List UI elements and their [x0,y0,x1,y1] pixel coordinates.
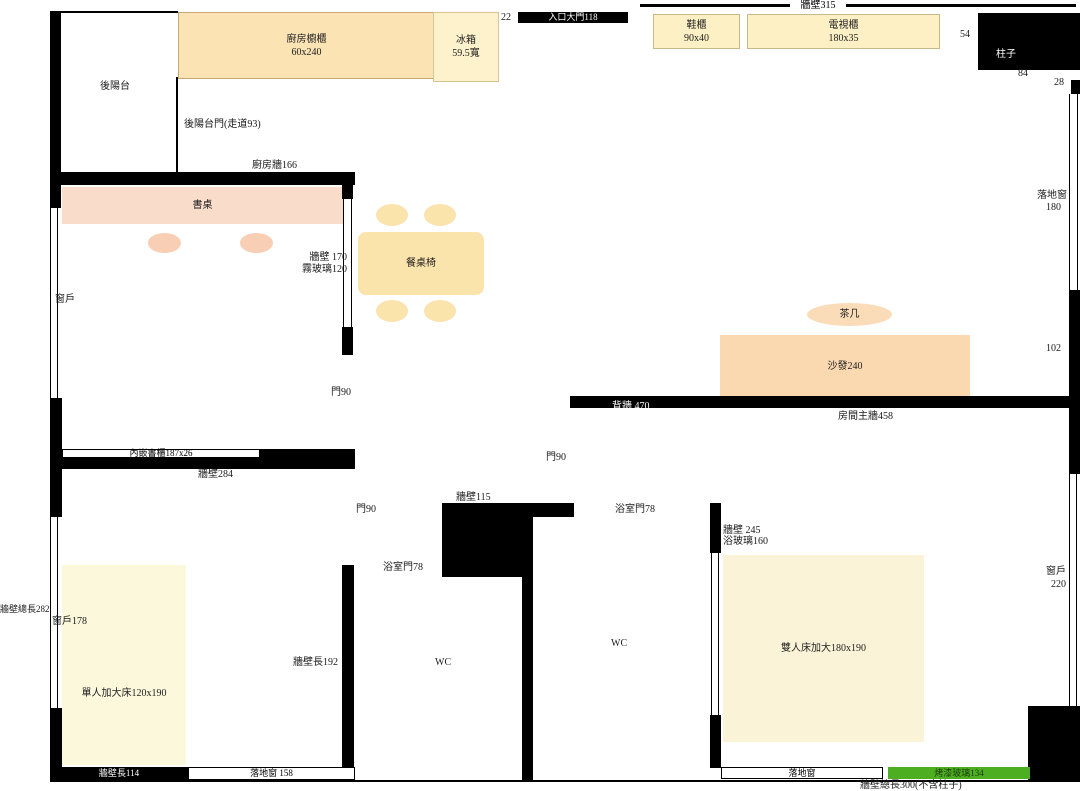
single-bed: 單人加大床120x190 [62,565,186,765]
study-door-label: 門90 [331,387,351,398]
wall-192-label: 牆壁長192 [290,657,338,668]
painted-glass-label: 烤漆玻璃134 [934,769,984,778]
window-178-label: 窗戶178 [52,616,87,627]
dining-table-label: 餐桌椅 [406,257,436,270]
pillar: 柱子 [978,13,1080,70]
dining-table: 餐桌椅 [358,232,484,295]
dining-chair-2 [424,204,456,226]
wall-right-below-back [1069,408,1080,474]
bookcase-label: 內嵌書櫃187x26 [129,449,192,458]
balcony-door-label: 後陽台門(走道93) [184,119,261,130]
hall-door-label: 門90 [546,452,566,463]
wall-wc2-right-top [710,503,721,553]
study-frosted-glass [343,199,352,327]
french-window-right [1069,94,1078,290]
floor-window-158: 落地窗 158 [188,767,355,780]
bath-glass-label: 浴玻璃160 [723,536,768,547]
tv-cabinet-size: 180x35 [829,32,859,45]
wall-top-balcony-line [50,11,178,13]
tv-cabinet: 電視櫃 180x35 [747,14,940,49]
kitchen-wall-label: 廚房牆166 [252,160,297,171]
tv-cabinet-label: 電視櫃 [829,19,859,32]
wall-115-label: 牆壁115 [456,492,491,503]
dim-102-label: 102 [1046,343,1061,354]
wall-left-study-top [50,185,61,208]
desk-chair-1 [148,233,181,253]
wall-245-label: 牆壁 245 [723,525,761,536]
dim-84-label: 84 [1018,68,1028,79]
shoe-cabinet-label: 鞋櫃 [687,19,707,32]
desk-label: 書桌 [193,199,213,212]
bath-glass-strip [711,553,719,715]
bath-door-1-label: 浴室門78 [383,562,423,573]
sofa: 沙發240 [720,335,970,397]
frosted-glass-label: 霧玻璃120 [292,264,347,275]
sofa-label: 沙發240 [828,360,863,373]
built-in-bookcase: 內嵌書櫃187x26 [62,449,260,458]
shoe-cabinet-size: 90x40 [684,32,709,45]
wc2-label: WC [611,638,627,649]
fridge-size: 59.5寬 [452,47,480,60]
desk: 書桌 [62,187,343,224]
bath-door-2-label: 浴室門78 [615,504,655,515]
kitchen-cabinet: 廚房櫥櫃 60x240 [178,12,435,79]
wall-study-right-bottom [342,327,353,355]
wall-left-bottom [50,708,62,769]
kitchen-cabinet-size: 60x240 [292,46,322,59]
top-wall-label: 牆壁315 [790,0,846,11]
double-bed: 雙人床加大180x190 [723,555,924,742]
floor-plan: 內嵌書櫃187x26 入口大門118 牆壁315 柱子 背牆 470 牆壁長11… [0,0,1080,791]
dining-chair-1 [376,204,408,226]
wall-114-bar: 牆壁長114 [50,767,188,780]
floor-window-158-label: 落地窗 158 [250,769,293,778]
wall-right-102 [1069,290,1080,398]
coffee-table: 茶几 [807,303,892,326]
floor-window-bottom-right: 落地窗 [721,767,883,779]
wall-115-extension [533,503,574,517]
entry-door-bar: 入口大門118 [518,12,628,23]
wall-wc2-right-bottom [710,715,721,768]
bedroom1-window [50,517,58,708]
fridge: 冰箱 59.5寬 [433,12,499,82]
desk-chair-2 [240,233,273,253]
window-220 [1069,474,1077,712]
balcony-divider-line [176,77,178,172]
wall-115-block [442,503,533,577]
kitchen-cabinet-label: 廚房櫥櫃 [287,33,327,46]
wc1-label: WC [435,657,451,668]
wall-114-label: 牆壁長114 [99,769,139,778]
dim-28-label: 28 [1054,77,1064,88]
french-window-right-label: 落地窗 [1035,190,1067,201]
wall-170-label: 牆壁 170 [292,252,347,263]
left-wall-total-label: 牆壁總長282 [0,604,50,615]
bedroom1-door-label: 門90 [356,504,376,515]
pillar-label: 柱子 [996,45,1016,60]
wall-284-under [62,458,260,469]
wall-left-middle [50,398,62,517]
wall-study-right-top [342,185,353,199]
room-main-wall-label: 房間主牆458 [838,411,893,422]
balcony-label: 後陽台 [100,81,130,92]
study-window-label: 窗戶 [55,294,75,305]
wall-right-28 [1071,80,1080,94]
floor-window-br-label: 落地窗 [788,769,815,778]
bottom-wall-total-label: 牆壁總長300(不含柱子) [860,780,962,791]
wall-corner-bottom-right [1028,706,1080,780]
wall-kitchen [50,172,355,185]
double-bed-label: 雙人床加大180x190 [781,642,866,655]
dining-chair-3 [376,300,408,322]
window-220-size: 220 [1040,579,1066,590]
wall-284-label: 牆壁284 [198,469,233,480]
wall-wc-divider [522,577,533,781]
wall-284-right [260,449,355,469]
fridge-label: 冰箱 [456,34,476,47]
french-window-right-size: 180 [1035,202,1061,213]
entry-door-label: 入口大門118 [548,13,597,22]
back-wall-label: 背牆 470 [612,397,650,412]
top-wall-dim-line [640,4,1076,7]
window-220-label: 窗戶 [1040,566,1066,577]
shoe-cabinet: 鞋櫃 90x40 [653,14,740,49]
wall-192 [342,565,354,771]
gap-22-label: 22 [501,12,511,23]
gap-54-label: 54 [960,29,970,40]
wall-left-top [50,12,61,172]
back-wall: 背牆 470 [570,396,1080,408]
painted-glass-bar: 烤漆玻璃134 [888,767,1030,779]
single-bed-label: 單人加大床120x190 [82,687,167,700]
coffee-table-label: 茶几 [840,308,860,321]
dining-chair-4 [424,300,456,322]
